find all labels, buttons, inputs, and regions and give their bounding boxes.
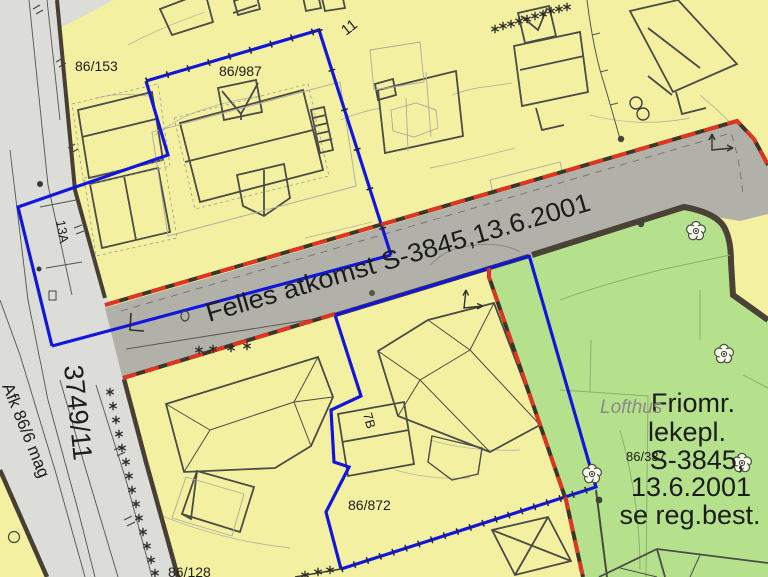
svg-text:Friomr.: Friomr.	[651, 388, 735, 418]
svg-text:se reg.best.: se reg.best.	[619, 500, 760, 530]
svg-text:86/872: 86/872	[348, 497, 391, 513]
svg-text:lekepl.: lekepl.	[648, 417, 726, 447]
svg-text:Lofthus: Lofthus	[600, 397, 663, 418]
svg-text:S-3845,: S-3845,	[650, 445, 745, 475]
svg-text:86/128: 86/128	[168, 564, 211, 577]
svg-text:86/987: 86/987	[219, 63, 262, 79]
svg-text:86/153: 86/153	[75, 58, 118, 74]
svg-text:13.6.2001: 13.6.2001	[631, 472, 751, 502]
